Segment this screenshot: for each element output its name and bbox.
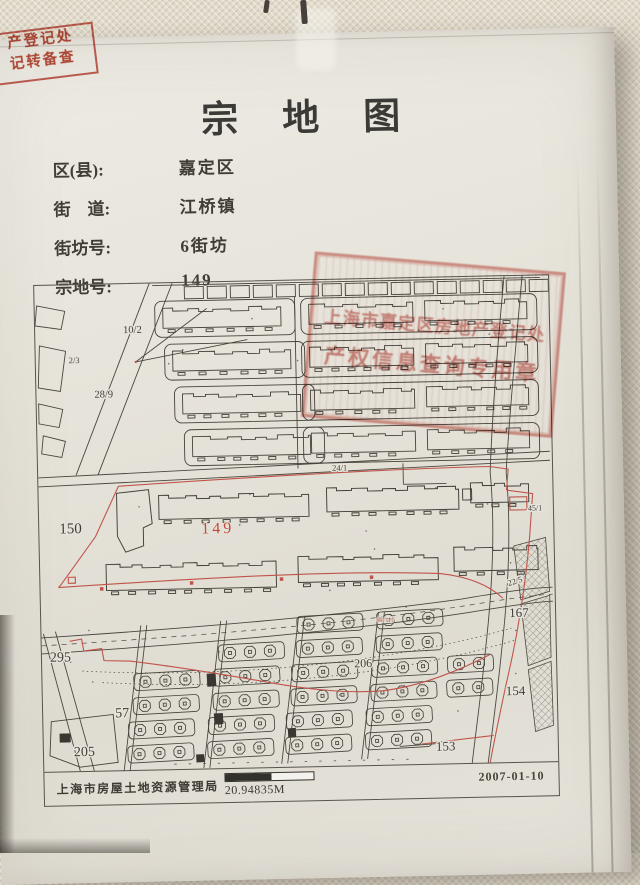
parcel-label-206: 206 (354, 656, 372, 670)
map-date: 2007-01-10 (478, 768, 544, 784)
form-row-street: 街 道: 江桥镇 (53, 192, 236, 221)
parcel-label-153: 153 (436, 738, 456, 753)
scale-bar-group: 20.94835M (224, 771, 334, 798)
paper-curl-line (597, 157, 614, 872)
parcel-label-24-1: 24/1 (332, 462, 347, 472)
scale-bar (224, 771, 314, 782)
parcel-label-149: 149 (201, 520, 234, 538)
garage-row (184, 279, 548, 299)
district-label: 区(县): (52, 155, 137, 182)
page-shadow (0, 838, 150, 853)
parcel-label-45-1: 45/1 (528, 503, 542, 512)
parcel-label-205: 205 (74, 745, 95, 760)
document-page: 宗地图 区(县): 嘉定区 街 道: 江桥镇 街坊号: 6街坊 宗地号: 149 (0, 27, 632, 885)
parcel-label-2-3: 2/3 (69, 355, 80, 365)
parcel-label-167: 167 (509, 605, 529, 620)
cadastral-map: 2/3 10/2 28/9 24/1 150 149 45/1 22/5 167… (34, 275, 558, 773)
scale-value: 20.94835M (225, 781, 335, 798)
photo-of-parcel-map-document: { "title": "宗地图", "corner_stamp": { "lin… (0, 0, 640, 853)
form-row-district: 区(县): 嘉定区 (52, 153, 235, 182)
parcel-label-57: 57 (115, 706, 129, 721)
parcel-label-10-2: 10/2 (123, 325, 142, 336)
street-label: 街 道: (53, 194, 138, 221)
parcel-label-28-9: 28/9 (94, 389, 113, 400)
village-label: 春六村 (377, 616, 394, 624)
block-value: 6街坊 (180, 231, 229, 257)
parcel-label-295: 295 (50, 650, 71, 665)
scale-bar-fill (225, 773, 271, 781)
upper-residential-block (155, 293, 540, 466)
cadastral-map-frame: 2/3 10/2 28/9 24/1 150 149 45/1 22/5 167… (33, 274, 560, 807)
binder-clip-icon (300, 0, 308, 24)
page-shadow (0, 615, 15, 853)
parcel-label-154: 154 (506, 683, 526, 698)
parcel-label-150: 150 (59, 521, 82, 537)
block-label: 街坊号: (54, 233, 139, 260)
district-value: 嘉定区 (178, 153, 236, 179)
hatched-parcels (514, 537, 554, 732)
parcel-149-buildings (104, 482, 538, 595)
page-title: 宗地图 (0, 81, 616, 148)
binder-clip-icon (263, 0, 270, 13)
street-value: 江桥镇 (179, 192, 237, 218)
paper-curl-line (577, 158, 594, 873)
issuing-agency: 上海市房屋土地资源管理局 (57, 777, 219, 797)
form-row-block: 街坊号: 6街坊 (54, 231, 237, 260)
